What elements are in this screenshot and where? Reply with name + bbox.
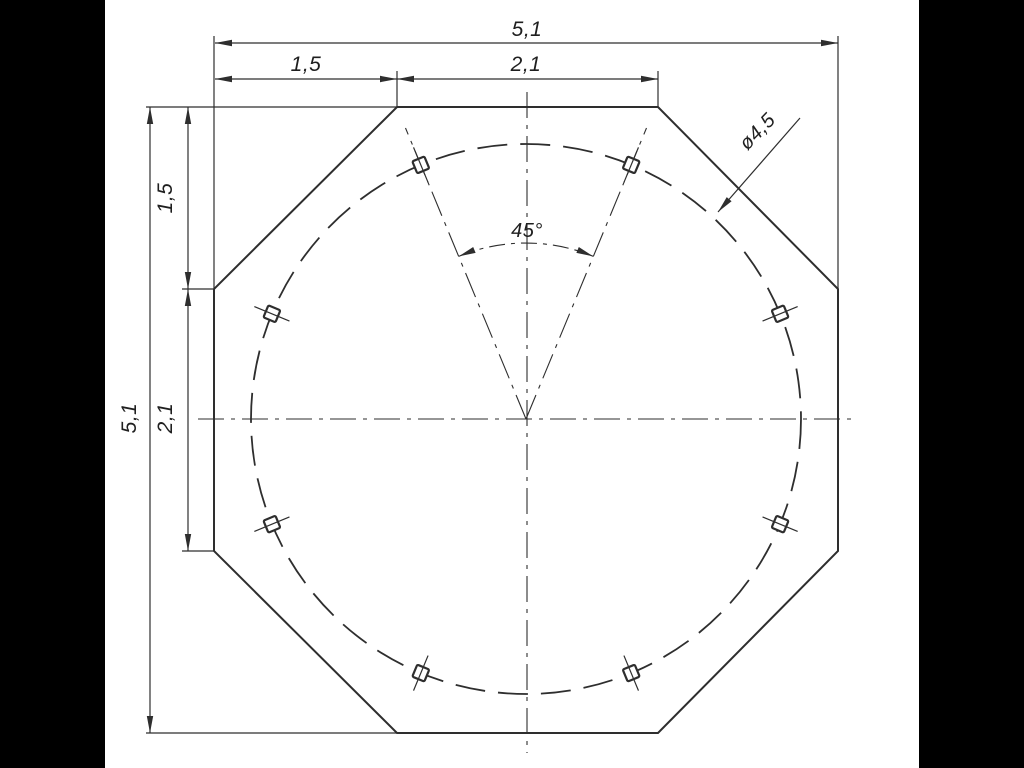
arrowhead — [147, 107, 153, 124]
dimension-arrows — [147, 40, 838, 733]
arrowhead — [380, 76, 397, 82]
bolt-hole — [408, 653, 435, 693]
bolt-hole — [618, 145, 645, 185]
drawing-canvas: 5,1 1,5 2,1 5,1 1,5 2,1 45° ø4,5 — [0, 0, 1024, 768]
octagon-outline — [214, 107, 838, 733]
bolt-hole — [408, 145, 435, 185]
arrowhead — [147, 716, 153, 733]
arrowhead — [185, 272, 191, 289]
letterbox-right — [919, 0, 1024, 768]
letterbox-left — [0, 0, 105, 768]
arrowhead — [576, 247, 594, 259]
bolt-hole — [252, 301, 292, 328]
technical-drawing: 5,1 1,5 2,1 5,1 1,5 2,1 45° ø4,5 — [0, 0, 1024, 768]
arrowhead — [397, 76, 414, 82]
arrowhead — [641, 76, 658, 82]
arrowhead — [457, 247, 475, 259]
arrowhead — [185, 289, 191, 306]
dim-top-left-segment-label: 1,5 — [291, 53, 322, 76]
arrowhead — [215, 76, 232, 82]
arrowhead — [185, 534, 191, 551]
angle-dimension-label: 45° — [511, 220, 543, 242]
dim-top-right-segment-label: 2,1 — [510, 53, 542, 76]
bolt-hole — [618, 653, 645, 693]
arrowhead — [821, 40, 838, 46]
dim-left-total-label: 5,1 — [118, 403, 141, 434]
centerlines — [198, 92, 857, 753]
bolt-hole — [760, 301, 800, 328]
bolt-hole — [760, 511, 800, 538]
dim-left-mid-segment-label: 2,1 — [154, 403, 177, 435]
dimension-and-extension-lines — [146, 36, 838, 733]
bolt-hole — [252, 511, 292, 538]
dim-top-total-label: 5,1 — [512, 18, 543, 41]
arrowhead — [215, 40, 232, 46]
angle-dimension-arc — [459, 243, 594, 256]
arrowhead — [185, 107, 191, 124]
dim-left-top-segment-label: 1,5 — [154, 183, 177, 214]
